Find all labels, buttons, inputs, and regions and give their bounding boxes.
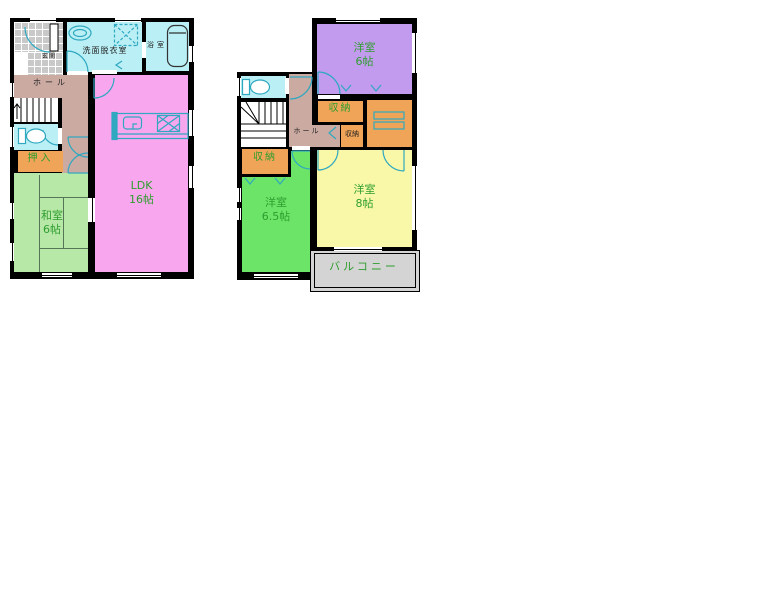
genkan-label: 玄関 [36, 53, 62, 61]
window [10, 243, 14, 261]
closet-small-label: 収納 [341, 130, 363, 139]
floorplan-canvas: 玄関 洗面脱衣室 浴室 ホール 押入 和室 6帖 LDK 16帖 ホール 収納 … [0, 0, 768, 614]
window [189, 166, 194, 188]
window [189, 46, 194, 62]
room-toilet1 [14, 124, 58, 150]
bedroom8-size: 8帖 [317, 197, 412, 211]
door-opening [318, 95, 340, 99]
window [115, 18, 141, 22]
window [334, 247, 382, 251]
washitsu-name: 和室 [14, 209, 90, 223]
bedroom6-name: 洋室 [317, 41, 412, 55]
ldk-size: 16帖 [95, 193, 188, 207]
bath-label: 浴室 [144, 41, 170, 50]
room-genkan-tiles [14, 22, 63, 52]
bedroom6-size: 6帖 [317, 55, 412, 69]
window [117, 273, 161, 277]
room-bedroom65 [242, 177, 310, 272]
room-ldk [95, 75, 188, 272]
stairs-2f [241, 102, 286, 147]
window [412, 33, 417, 73]
door-opening [30, 18, 56, 22]
room-toilet2 [241, 76, 286, 98]
hall2-label: ホール [283, 127, 331, 136]
room-hall1-corridor [62, 75, 88, 173]
window [189, 110, 194, 136]
window [10, 127, 14, 147]
ldk-label: LDK 16帖 [95, 179, 188, 207]
balcony-label: バルコニー [314, 260, 414, 274]
hall1-label: ホール [20, 78, 82, 88]
door-opening [58, 128, 62, 144]
window [237, 208, 241, 220]
bedroom6-label: 洋室 6帖 [317, 41, 412, 69]
window [10, 83, 14, 97]
window [42, 273, 72, 277]
door-opening [285, 78, 289, 94]
door-opening [67, 71, 88, 75]
window [237, 188, 241, 202]
window [336, 18, 380, 22]
washroom-label: 洗面脱衣室 [70, 46, 140, 56]
ldk-name: LDK [95, 179, 188, 193]
washitsu-size: 6帖 [14, 223, 90, 237]
door-opening [292, 146, 310, 150]
room-closet-right [367, 100, 412, 147]
window [412, 166, 417, 230]
closet-left-label: 収納 [242, 152, 288, 165]
washitsu-label: 和室 6帖 [14, 209, 90, 237]
bedroom8-label: 洋室 8帖 [317, 183, 412, 211]
bedroom65-size: 6.5帖 [242, 210, 310, 224]
closet-top-label: 収納 [318, 103, 363, 116]
stairs-1f [14, 98, 58, 122]
genkan-step [14, 52, 27, 75]
room-bedroom65-doorway [291, 151, 310, 177]
bedroom65-label: 洋室 6.5帖 [242, 196, 310, 224]
window [237, 78, 241, 96]
bedroom65-name: 洋室 [242, 196, 310, 210]
door-opening [92, 70, 117, 74]
bedroom8-name: 洋室 [317, 183, 412, 197]
window [254, 274, 298, 278]
oshiire-label: 押入 [18, 153, 63, 166]
